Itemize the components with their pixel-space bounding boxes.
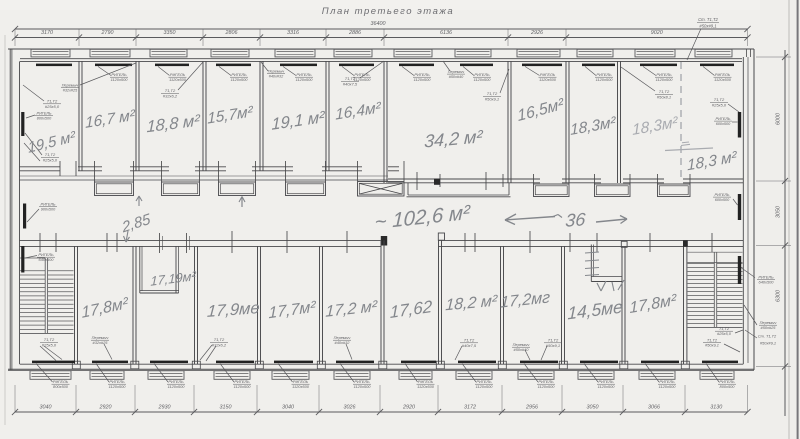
svg-text:1120х500: 1120х500 [231,77,249,82]
svg-text:3050: 3050 [587,405,599,411]
svg-text:600х500: 600х500 [716,122,731,126]
svg-text:640х500: 640х500 [759,280,775,285]
svg-text:3316: 3316 [287,30,299,36]
svg-text:#32х#25: #32х#25 [63,88,78,92]
svg-text:3040: 3040 [282,405,294,411]
svg-text:Перемыч: Перемыч [448,70,464,74]
svg-text:1120х500: 1120х500 [714,77,732,82]
svg-text:36: 36 [565,209,587,231]
svg-text:#25х5,0: #25х5,0 [45,104,60,109]
svg-text:1120х500: 1120х500 [476,384,494,389]
svg-text:3172: 3172 [464,405,476,411]
svg-text:900х500: 900х500 [41,207,56,211]
svg-text:#50х9,1: #50х9,1 [705,343,719,348]
svg-text:1120х500: 1120х500 [234,384,252,389]
svg-text:1120х500: 1120х500 [354,384,372,389]
svg-text:РИГЕЛЬ: РИГЕЛЬ [715,193,730,197]
svg-text:2956: 2956 [525,405,538,411]
svg-text:1120х500: 1120х500 [656,77,674,82]
svg-text:#40х#32: #40х#32 [269,74,284,78]
svg-text:#50х#9,1: #50х#9,1 [699,24,716,29]
svg-text:2920: 2920 [402,405,415,411]
svg-text:800х500: 800х500 [720,384,736,389]
svg-text:Ст. Т1,Т2: Ст. Т1,Т2 [698,17,718,22]
svg-text:Ст. Т1,Т2: Ст. Т1,Т2 [758,334,777,339]
svg-text:1120х500: 1120х500 [539,77,557,82]
svg-text:3040: 3040 [40,405,52,411]
svg-text:Перемыч: Перемыч [62,83,78,87]
svg-text:#50х9,1: #50х9,1 [485,96,499,101]
svg-text:1120х500: 1120х500 [598,384,616,389]
svg-text:#25х5,0: #25х5,0 [712,102,727,107]
svg-text:РИГЕЛЬ: РИГЕЛЬ [37,111,52,115]
svg-text:1120х500: 1120х500 [296,77,314,82]
svg-text:1120х500: 1120х500 [168,384,186,389]
svg-text:1120х500: 1120х500 [596,77,614,82]
svg-text:#50х8,1: #50х8,1 [657,94,671,99]
svg-text:3350: 3350 [164,30,176,36]
svg-text:6300: 6300 [776,290,782,302]
svg-text:1120х500: 1120х500 [538,384,556,389]
svg-text:1120х500: 1120х500 [417,384,435,389]
svg-text:800х500: 800х500 [37,116,52,120]
svg-text:1120х500: 1120х500 [111,77,129,82]
svg-text:#40х#32: #40х#32 [335,340,351,345]
svg-text:План третьего этажа: План третьего этажа [322,6,454,17]
svg-text:600х500: 600х500 [715,198,730,202]
svg-text:6136: 6136 [440,30,452,36]
svg-text:#25х5,0: #25х5,0 [717,331,732,336]
svg-text:3150: 3150 [220,405,232,411]
svg-text:#40х7,5: #40х7,5 [343,81,358,86]
svg-text:1120х500: 1120х500 [659,384,677,389]
svg-text:#25х5,0: #25х5,0 [43,157,58,162]
svg-text:3050: 3050 [776,206,782,218]
svg-text:1120х500: 1120х500 [109,384,127,389]
svg-text:17,9ме: 17,9ме [206,298,260,321]
svg-text:800х500: 800х500 [53,384,69,389]
svg-text:2930: 2930 [158,405,171,411]
svg-text:РИГЕЛЬ: РИГЕЛЬ [41,202,56,206]
svg-text:2790: 2790 [101,30,114,36]
svg-text:3170: 3170 [41,30,53,36]
svg-text:#50х#40: #50х#40 [449,75,464,79]
svg-text:640х500: 640х500 [39,257,55,262]
svg-text:2806: 2806 [225,30,238,36]
svg-text:3026: 3026 [344,405,356,411]
svg-text:1120х500: 1120х500 [292,384,310,389]
svg-text:3066: 3066 [648,405,660,411]
svg-text:2926: 2926 [530,30,543,36]
svg-text:#50х#25: #50х#25 [761,325,777,330]
svg-text:3130: 3130 [710,405,722,411]
svg-text:#32х#25: #32х#25 [93,340,109,345]
svg-text:#50х#40: #50х#40 [514,347,530,352]
svg-text:РИГЕЛЬ: РИГЕЛЬ [716,117,731,121]
svg-text:1120х500: 1120х500 [414,77,432,82]
svg-text:#32х6,2: #32х6,2 [212,342,227,347]
svg-text:6000: 6000 [776,113,782,125]
svg-text:#32х6,2: #32х6,2 [163,93,178,98]
svg-text:#40х7,5: #40х7,5 [462,343,477,348]
svg-text:1120х500: 1120х500 [169,77,187,82]
svg-text:36400: 36400 [371,21,386,27]
svg-text:Перемыч: Перемыч [268,69,284,73]
svg-text:#25х5,0: #25х5,0 [42,342,57,347]
svg-text:#50х9,1: #50х9,1 [546,343,560,348]
svg-text:1120х500: 1120х500 [474,77,492,82]
svg-text:9020: 9020 [651,30,663,36]
svg-text:#50х#9,1: #50х#9,1 [760,341,776,346]
svg-text:2920: 2920 [99,405,112,411]
svg-text:2886: 2886 [348,30,361,36]
